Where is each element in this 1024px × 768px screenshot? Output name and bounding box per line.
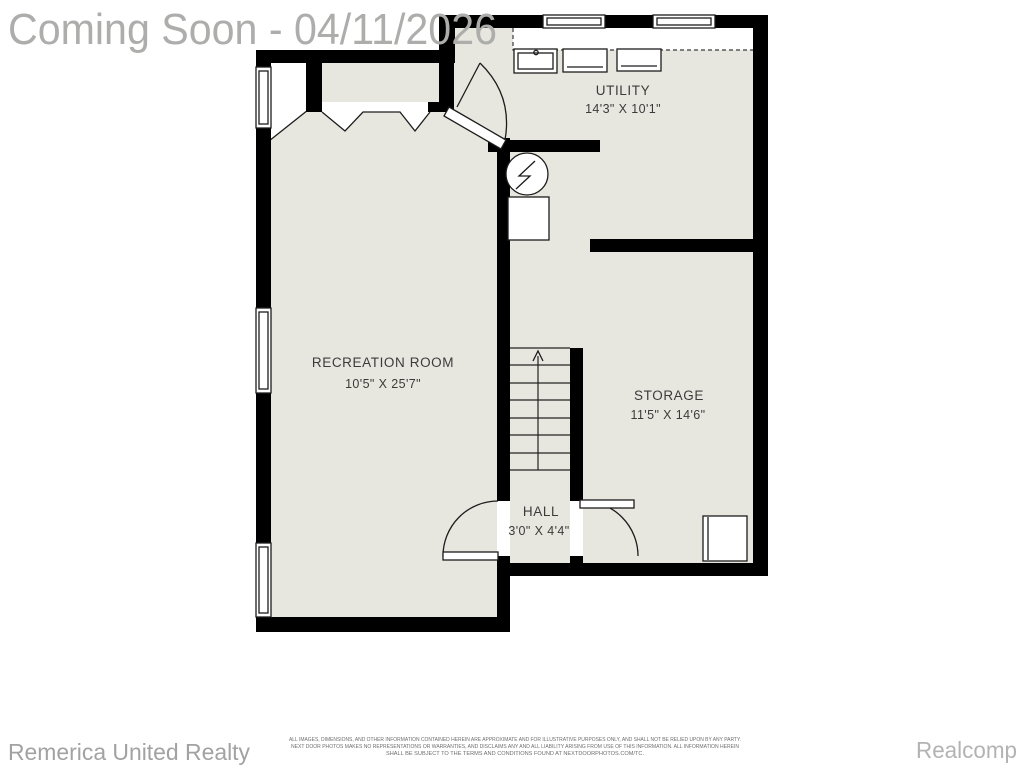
disclaimer-line-1: ALL IMAGES, DIMENSIONS, AND OTHER INFORM…: [289, 737, 741, 743]
room-storage-dims: 11'5" X 14'6": [631, 408, 706, 422]
floor-plan-svg: UTILITY 14'3" X 10'1" RECREATION ROOM 10…: [0, 0, 1024, 768]
room-recreation-dims: 10'5" X 25'7": [345, 377, 421, 391]
window-left-3: [256, 543, 271, 617]
room-hall-label: HALL: [523, 504, 559, 519]
wall-bottom-hall-storage: [497, 563, 768, 576]
wall-right-exterior: [753, 15, 768, 576]
disclaimer-line-2: NEXT DOOR PHOTOS MAKES NO REPRESENTATION…: [291, 744, 739, 750]
window-top-1: [543, 15, 605, 28]
room-recreation-label: RECREATION ROOM: [312, 355, 454, 370]
coming-soon-watermark: Coming Soon - 04/11/2026: [8, 5, 497, 54]
furnace: [508, 197, 549, 240]
wall-closet-left: [306, 63, 322, 112]
counter-surface: [513, 28, 753, 50]
wall-left-seg2: [256, 128, 271, 308]
utility-counter: [513, 28, 753, 50]
room-utility-dims: 14'3" X 10'1": [585, 102, 661, 116]
disclaimer-line-3: SHALL BE SUBJECT TO THE TERMS AND CONDIT…: [386, 751, 644, 757]
water-heater-symbol: [506, 153, 548, 195]
washer: [563, 49, 607, 72]
floor-plan-page: UTILITY 14'3" X 10'1" RECREATION ROOM 10…: [0, 0, 1024, 768]
window-left-2: [256, 308, 271, 393]
listing-brokerage-name: Remerica United Realty: [8, 739, 250, 765]
wall-utility-storage: [590, 239, 768, 252]
room-utility-label: UTILITY: [596, 83, 650, 98]
realcomp-logo-text: Realcomp: [916, 737, 1017, 763]
wall-left-seg3: [256, 393, 271, 543]
storage-door-jamb: [570, 501, 583, 556]
laundry-sink: [514, 49, 557, 73]
room-storage-label: STORAGE: [634, 388, 704, 403]
window-left-1: [256, 67, 271, 128]
storage-door-leaf: [580, 500, 634, 508]
room-hall-dims: 3'0" X 4'4": [508, 524, 569, 538]
dryer: [617, 49, 661, 71]
footer: Remerica United Realty Realcomp ALL IMAG…: [8, 737, 1017, 765]
wall-utility-south-a: [508, 140, 600, 152]
window-top-2: [653, 15, 715, 28]
wall-stair-right-upper: [570, 348, 583, 501]
storage-access-panel: [703, 516, 747, 561]
wall-rec-bottom: [256, 617, 510, 632]
rec-door-leaf: [443, 552, 498, 560]
wall-hall-left-upper: [497, 138, 510, 501]
